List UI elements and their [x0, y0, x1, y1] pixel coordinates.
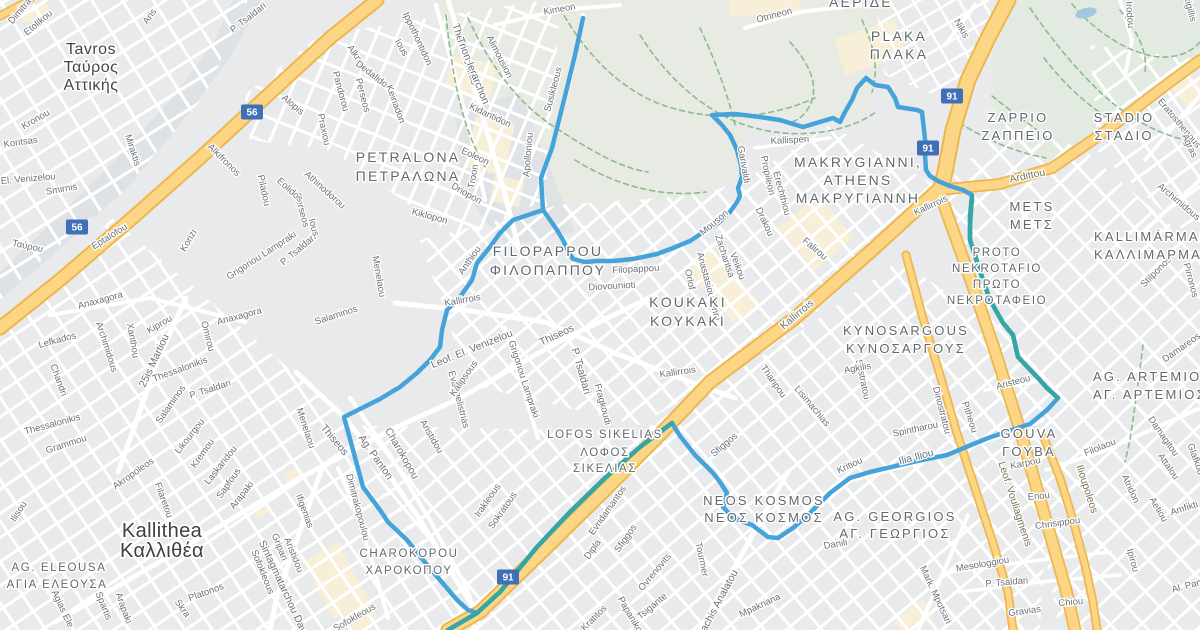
district-label[interactable]: ΧΑΡΟΚΟΠΟΥ [365, 565, 452, 577]
street-label[interactable]: Irodou [1123, 1, 1136, 29]
district-label[interactable]: ΜΑΚΡΥΓΙΑΝΝΗ [796, 190, 920, 206]
district-label[interactable]: ΓΟΥΒΑ [1002, 444, 1056, 459]
svg-text:91: 91 [946, 92, 958, 103]
svg-text:91: 91 [502, 573, 514, 584]
svg-text:56: 56 [71, 223, 83, 234]
district-label[interactable]: ΠΕΤΡΑΛΩΝΑ [356, 168, 461, 184]
district-label[interactable]: LOFOS SIKELIAS [547, 429, 663, 441]
street-label[interactable]: Kallisperi [770, 134, 809, 147]
district-label[interactable]: ΣΙΚΕΛΙΑΣ [573, 463, 637, 475]
district-label[interactable]: FILOPAPPOU [493, 243, 603, 259]
district-label[interactable]: ΝΕΟΣ ΚΟΣΜΟΣ [704, 510, 823, 525]
district-label[interactable]: CHAROKOPOU [359, 548, 458, 560]
district-label[interactable]: ΠΛΑΚΑ [870, 46, 928, 62]
district-label[interactable]: ΑΓ. ΑΡΤΕΜΙΟΣ [1093, 387, 1200, 402]
district-label[interactable]: AG. GEORGIOS [833, 509, 956, 524]
district-label[interactable]: KALLIMÁRMAR [1094, 229, 1200, 244]
road-badge-91: 91 [497, 570, 519, 585]
district-label[interactable]: METS [1010, 199, 1055, 214]
district-label[interactable]: ΖΑΠΠΕΙΟ [981, 128, 1054, 143]
district-label[interactable]: Αττικής [64, 77, 119, 94]
district-label[interactable]: ΑΓΙΑ ΕΛΕΟΥΣΑ [7, 579, 108, 591]
map-viewport[interactable]: P. Tsaldari P. Tsaldari P. Tsaldari P. T… [0, 0, 1200, 630]
district-label[interactable]: PLAKA [871, 28, 927, 44]
district-label[interactable]: AG. ARTEMIOS [1093, 369, 1200, 384]
district-label[interactable]: KOUKAKI [649, 294, 727, 310]
city-label[interactable]: Kallithea [122, 520, 203, 542]
svg-text:91: 91 [922, 144, 934, 155]
street-label[interactable]: Chiou [1058, 596, 1084, 609]
district-label[interactable]: AG. ELEOUSA [12, 562, 107, 574]
district-label[interactable]: ΠΡΩΤΟ [973, 279, 1021, 291]
district-label[interactable]: ΦΙΛΟΠΑΠΠΟΥ [490, 262, 606, 278]
district-label[interactable]: GOUVA [1001, 426, 1058, 441]
district-label[interactable]: PETRALONA [356, 149, 461, 165]
road-badge-56: 56 [241, 105, 263, 120]
road-badge-91: 91 [941, 89, 963, 104]
road-badge-91: 91 [917, 141, 939, 156]
district-label[interactable]: ΑΕΡΙΔΕ΢ [829, 0, 895, 10]
district-label[interactable]: ΣΤΑΔΙΟ [1094, 128, 1153, 143]
district-label[interactable]: Tavros [66, 41, 116, 58]
district-label[interactable]: ZAPPIO [988, 110, 1049, 125]
city-label[interactable]: Καλλιθέα [120, 540, 204, 562]
district-label[interactable]: ΚΟΥΚΑΚΙ [650, 313, 726, 329]
road-badge-56: 56 [66, 220, 88, 235]
street-label[interactable]: Enou [1027, 490, 1050, 503]
district-label[interactable]: ΚΑΛΛΙΜΑΡΜΑΡ [1094, 247, 1200, 262]
svg-text:56: 56 [246, 108, 258, 119]
district-label[interactable]: NEOS KOSMOS [703, 493, 825, 508]
district-label[interactable]: KYNOSARGOUS [843, 323, 969, 338]
district-label[interactable]: ΚΥΝΟΣΑΡΓΟΥΣ [846, 341, 966, 356]
district-label[interactable]: ΝΕΚΡΟΤΑΦΕΙΟ [947, 295, 1047, 307]
district-label[interactable]: PROTO [973, 247, 1022, 259]
district-label[interactable]: ΑΓ. ΓΕΩΡΓΙΟΣ [839, 526, 950, 541]
district-label[interactable]: ΛΟΦΟΣ [580, 447, 630, 459]
district-label[interactable]: NEKROTAFIO [952, 263, 1042, 275]
district-label[interactable]: ATHENS [824, 172, 893, 188]
district-label[interactable]: STADIO [1094, 110, 1155, 125]
district-label[interactable]: MAKRYGIANNI, [794, 154, 922, 170]
district-label[interactable]: ΜΕΤΣ [1010, 217, 1054, 232]
map-canvas[interactable]: P. Tsaldari P. Tsaldari P. Tsaldari P. T… [0, 0, 1200, 630]
district-label[interactable]: Ταύρος [64, 59, 119, 76]
